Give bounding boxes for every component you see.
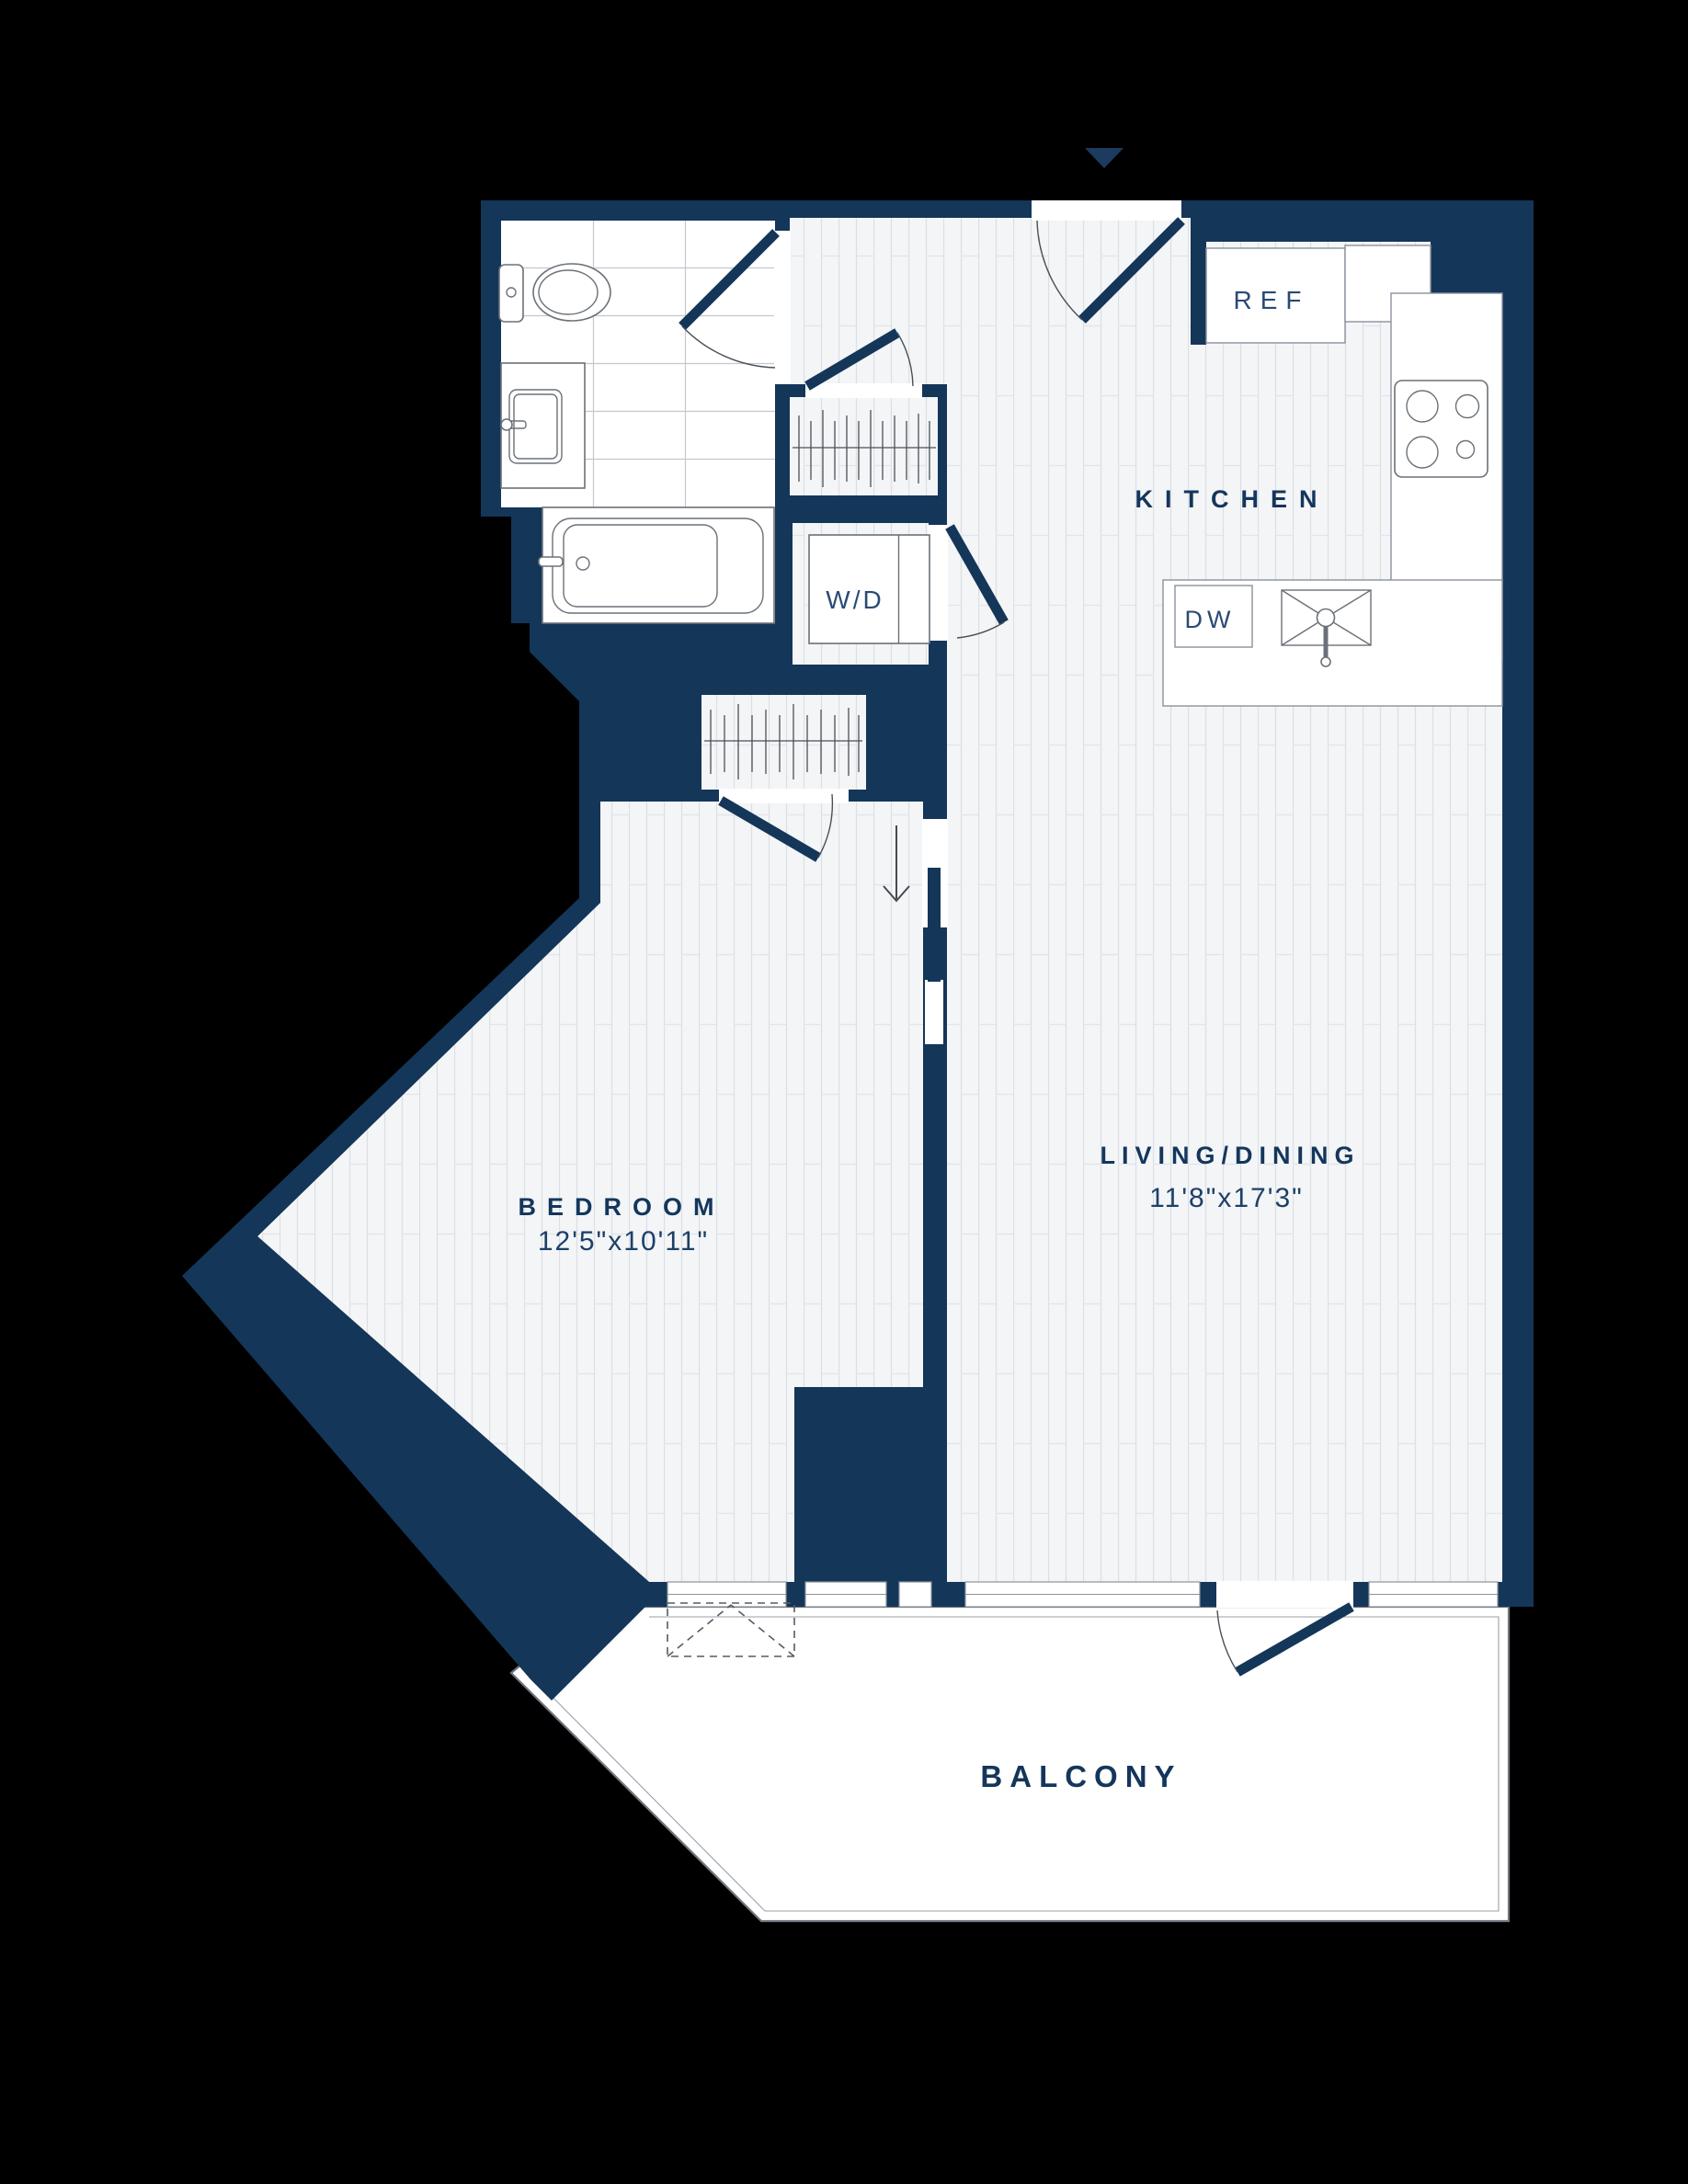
balcony-label: BALCONY — [980, 1759, 1181, 1793]
balcony-floor — [511, 1595, 1509, 1921]
bathtub — [539, 507, 774, 623]
wd-label: W/D — [826, 586, 884, 614]
toilet-bowl — [533, 264, 610, 321]
sink-faucet-base — [1317, 609, 1335, 627]
entry-door-opening — [1032, 200, 1181, 221]
toilet-tank — [499, 265, 523, 322]
wd-door-opening — [928, 525, 948, 641]
cooktop — [1395, 381, 1488, 477]
floor-plan-svg: KITCHEN LIVING/DINING 11'8"x17'3" BEDROO… — [0, 0, 1688, 2184]
tub-spout — [539, 557, 563, 566]
vanity — [501, 363, 585, 488]
bedroom-closet-floor — [701, 695, 866, 790]
ref-wall-stub — [1191, 242, 1206, 345]
vanity-faucet — [501, 419, 512, 430]
living-dining-label: LIVING/DINING — [1100, 1142, 1360, 1169]
sliding-door-pocket — [925, 980, 943, 1044]
bathroom-door-opening — [774, 231, 791, 384]
corner-wall-block — [1431, 230, 1523, 293]
kitchen-label: KITCHEN — [1135, 485, 1329, 513]
bedroom-label: BEDROOM — [519, 1193, 725, 1221]
chase-window-right — [899, 1582, 931, 1607]
dw-label: DW — [1185, 606, 1236, 633]
bedroom-closet-door-opening — [719, 789, 849, 803]
floor-plan-page: KITCHEN LIVING/DINING 11'8"x17'3" BEDROO… — [0, 0, 1688, 2184]
entry-closet-floor — [790, 397, 938, 495]
living-dining-dimensions: 11'8"x17'3" — [1149, 1183, 1304, 1213]
balcony — [511, 1595, 1509, 1921]
ref-label: REF — [1234, 286, 1310, 314]
sink-faucet-end — [1321, 657, 1330, 666]
balcony-door-opening — [1216, 1581, 1353, 1608]
bedroom-dimensions: 12'5"x10'11" — [538, 1226, 709, 1257]
entry-direction-triangle — [1085, 148, 1123, 168]
sliding-door-panel — [928, 868, 941, 982]
toilet — [499, 264, 610, 322]
entry-closet-door-opening — [805, 383, 922, 398]
